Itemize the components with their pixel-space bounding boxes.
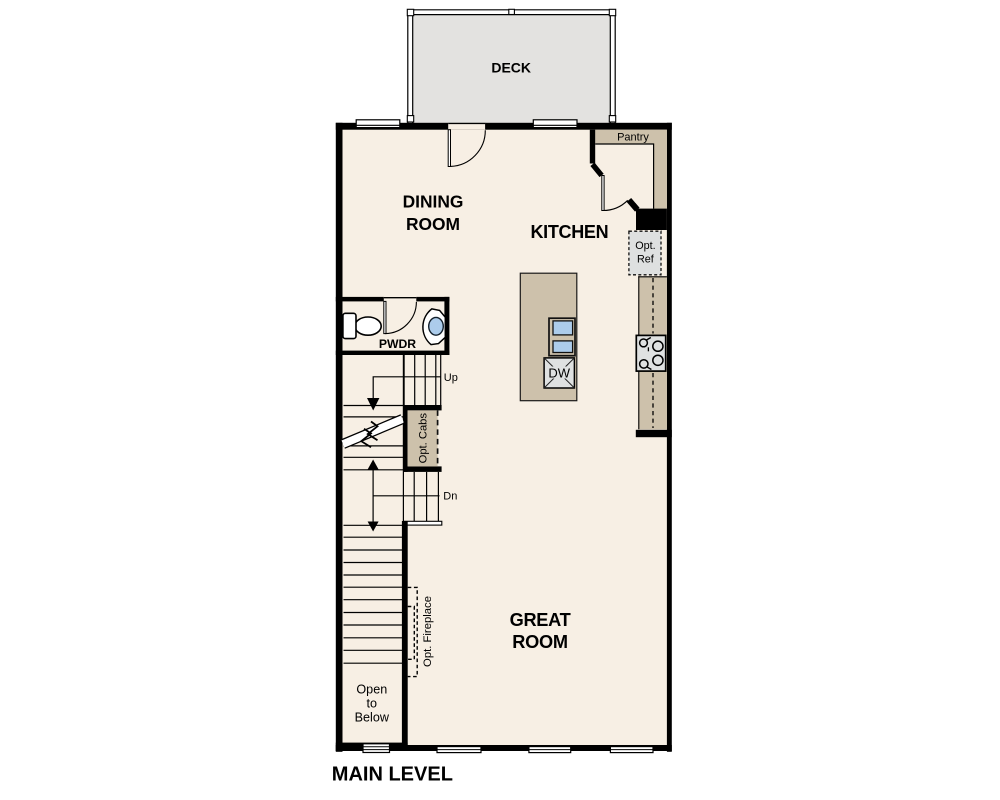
svg-text:DW: DW: [548, 366, 570, 381]
svg-text:DINING: DINING: [403, 192, 464, 212]
svg-text:Opt. Fireplace: Opt. Fireplace: [422, 596, 434, 667]
svg-text:Up: Up: [444, 372, 458, 384]
svg-text:Below: Below: [355, 710, 390, 724]
svg-text:ROOM: ROOM: [406, 214, 460, 234]
svg-text:Ref: Ref: [637, 254, 655, 266]
svg-text:KITCHEN: KITCHEN: [530, 222, 608, 242]
svg-text:Open: Open: [356, 682, 387, 696]
svg-text:MAIN LEVEL: MAIN LEVEL: [332, 764, 453, 786]
svg-text:Opt.: Opt.: [635, 240, 655, 252]
svg-text:to: to: [367, 696, 378, 710]
svg-text:ROOM: ROOM: [512, 632, 567, 652]
svg-text:Pantry: Pantry: [617, 131, 649, 143]
svg-text:Dn: Dn: [443, 491, 457, 503]
svg-text:DECK: DECK: [491, 59, 531, 75]
svg-text:PWDR: PWDR: [379, 337, 416, 351]
svg-text:Opt. Cabs: Opt. Cabs: [417, 413, 429, 464]
svg-text:GREAT: GREAT: [510, 610, 571, 630]
